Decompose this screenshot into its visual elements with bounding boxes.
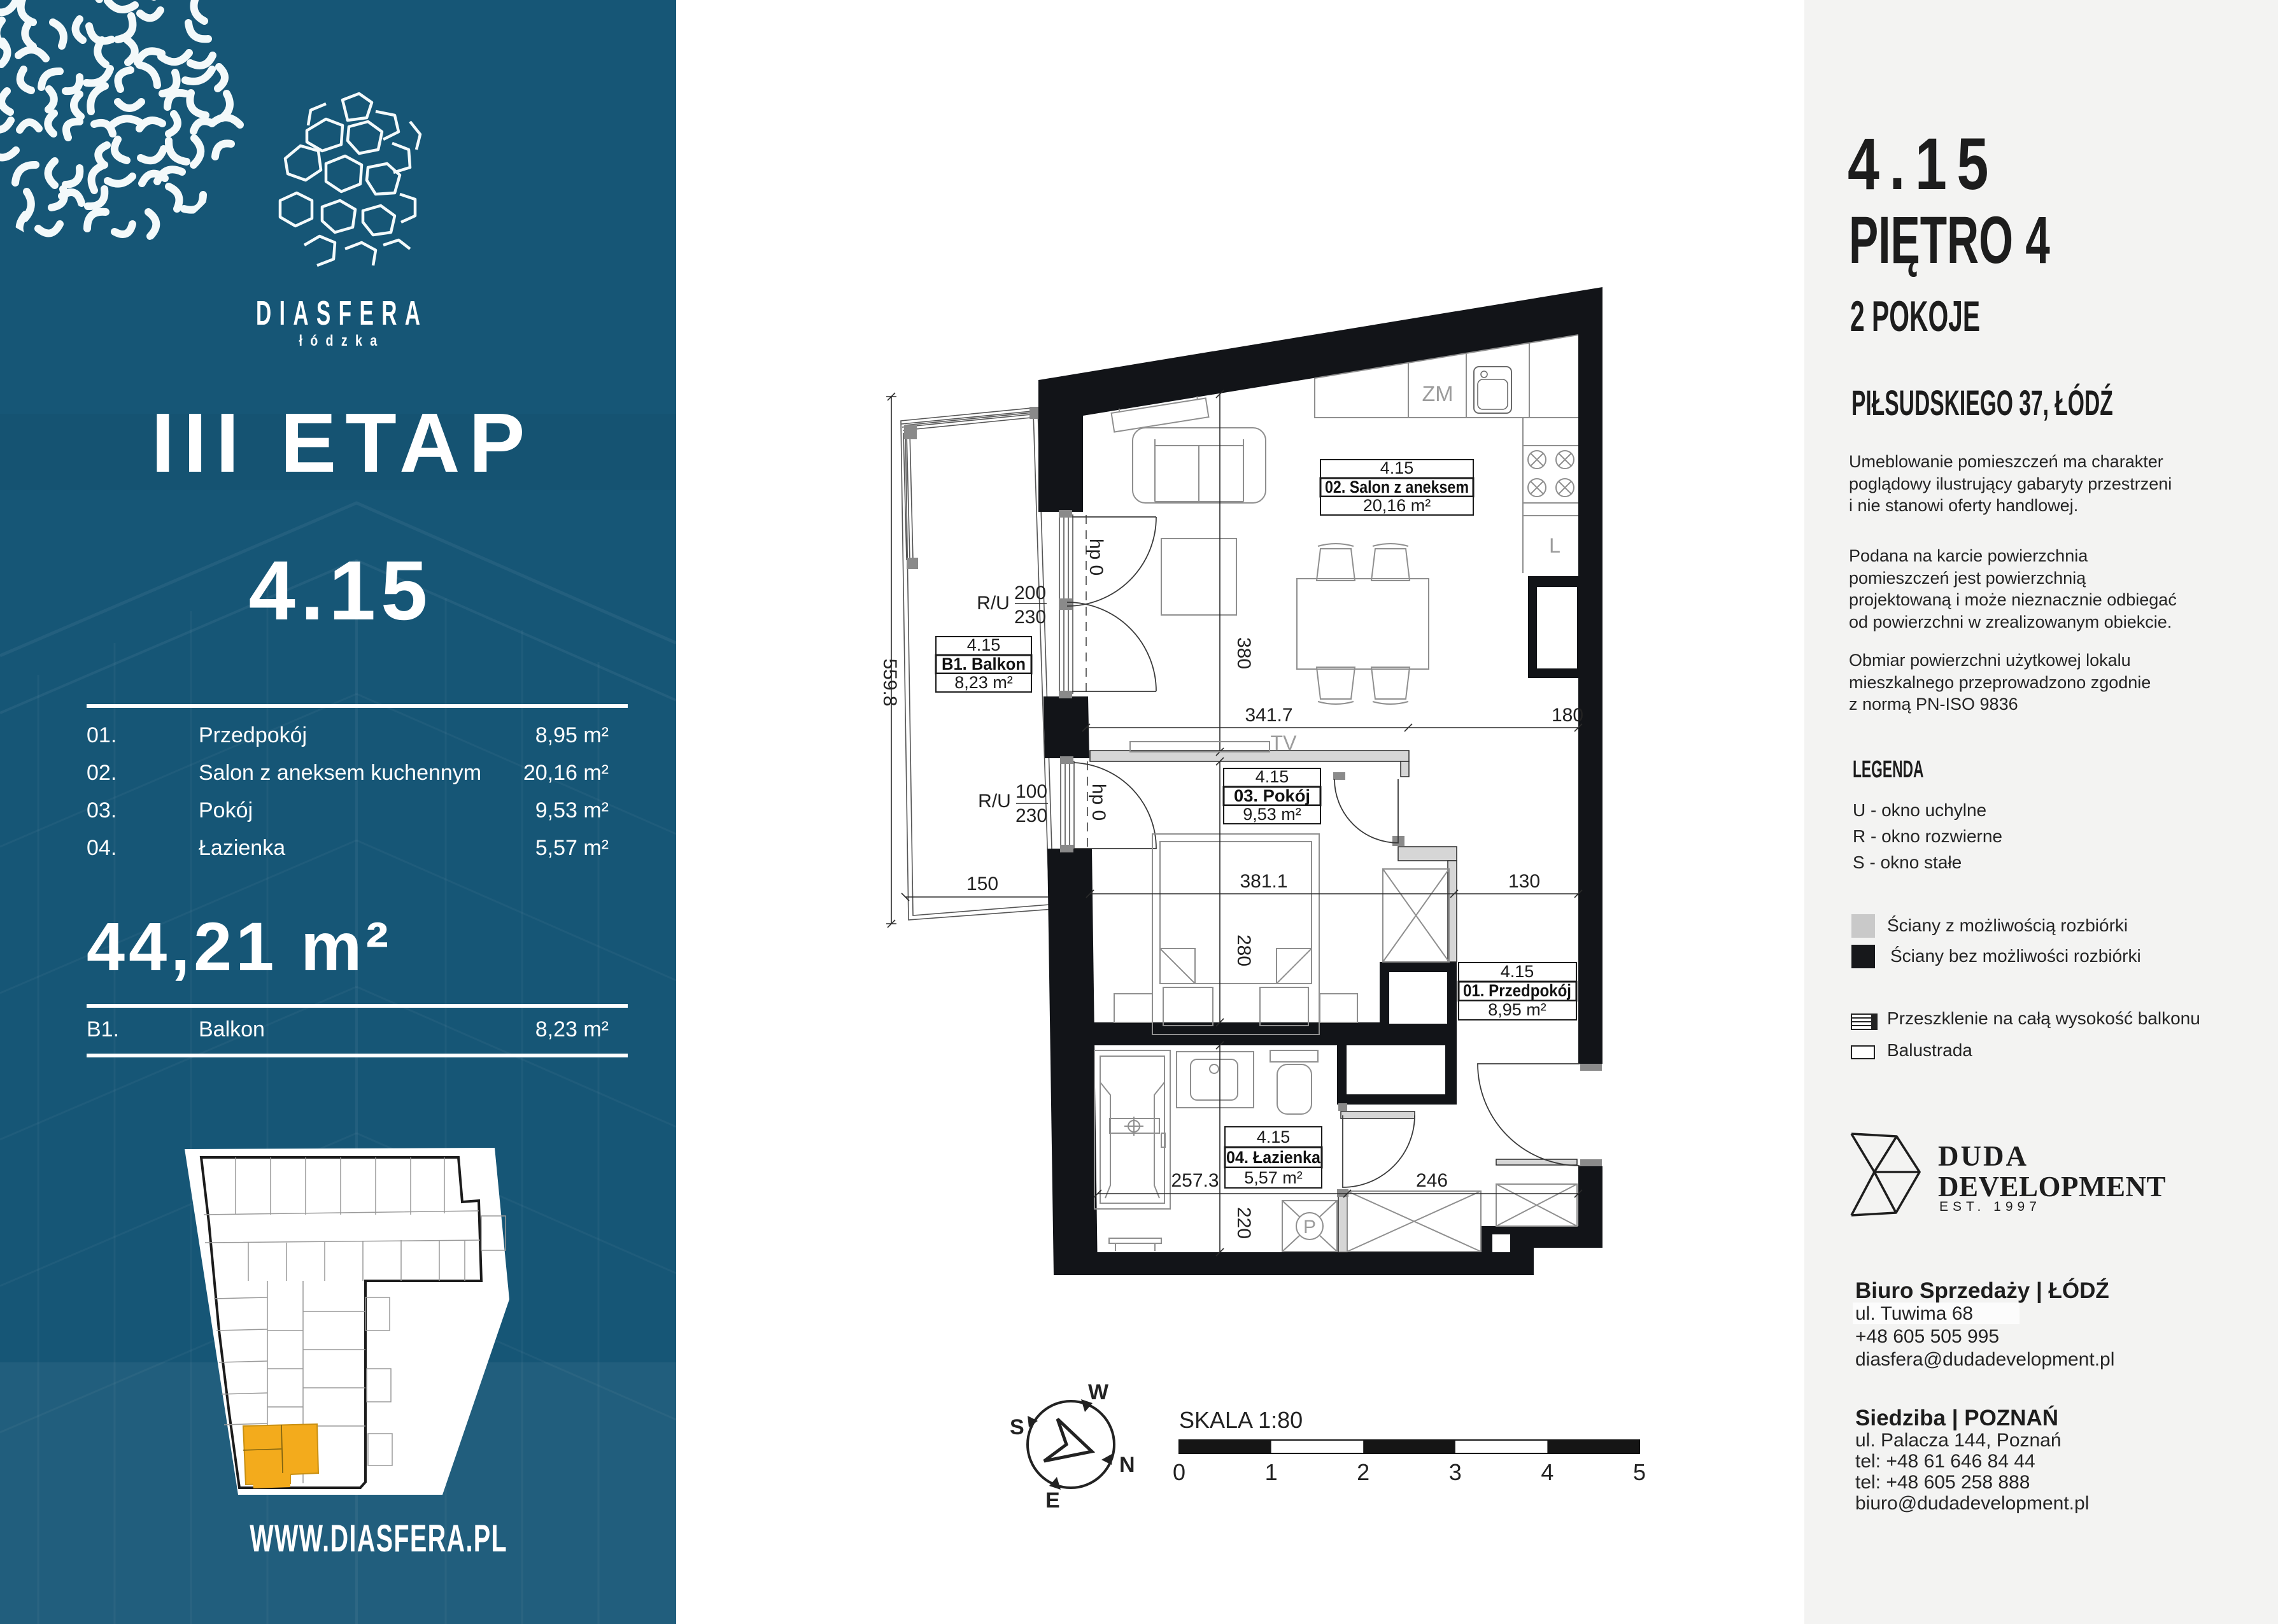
svg-text:DEVELOPMENT: DEVELOPMENT: [1938, 1171, 2166, 1203]
svg-text:4.15: 4.15: [967, 635, 1001, 654]
svg-text:04. Łazienka: 04. Łazienka: [1226, 1148, 1321, 1167]
svg-text:100: 100: [1015, 781, 1047, 802]
svg-text:230: 230: [1015, 805, 1047, 826]
svg-text:R/U: R/U: [977, 593, 1010, 614]
svg-text:S: S: [1010, 1415, 1024, 1439]
svg-text:246: 246: [1416, 1170, 1448, 1191]
svg-text:4.15: 4.15: [1257, 1127, 1291, 1147]
svg-text:220: 220: [1233, 1207, 1254, 1239]
svg-text:280: 280: [1233, 935, 1254, 966]
svg-text:2: 2: [1357, 1459, 1369, 1485]
svg-text:230: 230: [1014, 607, 1046, 628]
svg-text:ZM: ZM: [1422, 382, 1453, 406]
svg-text:200: 200: [1014, 583, 1046, 604]
svg-text:N: N: [1119, 1453, 1135, 1477]
svg-text:4.15: 4.15: [1501, 962, 1534, 981]
svg-text:180: 180: [1552, 705, 1583, 726]
svg-text:8,23 m²: 8,23 m²: [954, 673, 1013, 692]
svg-text:R/U: R/U: [978, 791, 1011, 812]
svg-text:1: 1: [1265, 1459, 1278, 1485]
svg-text:W: W: [1088, 1380, 1109, 1404]
svg-text:03. Pokój: 03. Pokój: [1234, 786, 1310, 805]
svg-text:B1. Balkon: B1. Balkon: [942, 654, 1026, 674]
svg-text:257.3: 257.3: [1171, 1170, 1219, 1191]
svg-text:5,57 m²: 5,57 m²: [1244, 1168, 1303, 1187]
svg-text:EST. 1997: EST. 1997: [1939, 1199, 2041, 1214]
svg-text:381.1: 381.1: [1240, 871, 1287, 892]
svg-text:L: L: [1549, 534, 1560, 557]
svg-text:4: 4: [1541, 1459, 1553, 1485]
svg-text:3: 3: [1449, 1459, 1462, 1485]
svg-text:9,53 m²: 9,53 m²: [1243, 805, 1301, 824]
svg-text:8,95 m²: 8,95 m²: [1488, 1000, 1546, 1019]
svg-text:380: 380: [1233, 637, 1254, 669]
svg-text:P: P: [1303, 1217, 1316, 1238]
svg-text:hp 0: hp 0: [1088, 784, 1109, 821]
svg-text:DUDA: DUDA: [1938, 1140, 2028, 1172]
svg-text:150: 150: [966, 873, 998, 894]
svg-text:01. Przedpokój: 01. Przedpokój: [1463, 981, 1571, 1000]
svg-text:hp 0: hp 0: [1086, 539, 1107, 575]
svg-text:TV: TV: [1271, 731, 1298, 754]
svg-text:4.15: 4.15: [1380, 458, 1414, 477]
svg-text:341.7: 341.7: [1245, 705, 1292, 726]
svg-text:02. Salon z aneksem: 02. Salon z aneksem: [1325, 477, 1469, 497]
svg-text:20,16 m²: 20,16 m²: [1363, 496, 1431, 515]
svg-text:E: E: [1045, 1488, 1060, 1513]
svg-text:SKALA 1:80: SKALA 1:80: [1179, 1407, 1303, 1433]
svg-text:5: 5: [1633, 1459, 1646, 1485]
svg-text:559.8: 559.8: [879, 658, 900, 706]
svg-text:4.15: 4.15: [1256, 767, 1289, 786]
svg-text:130: 130: [1508, 871, 1540, 892]
svg-text:0: 0: [1173, 1459, 1185, 1485]
